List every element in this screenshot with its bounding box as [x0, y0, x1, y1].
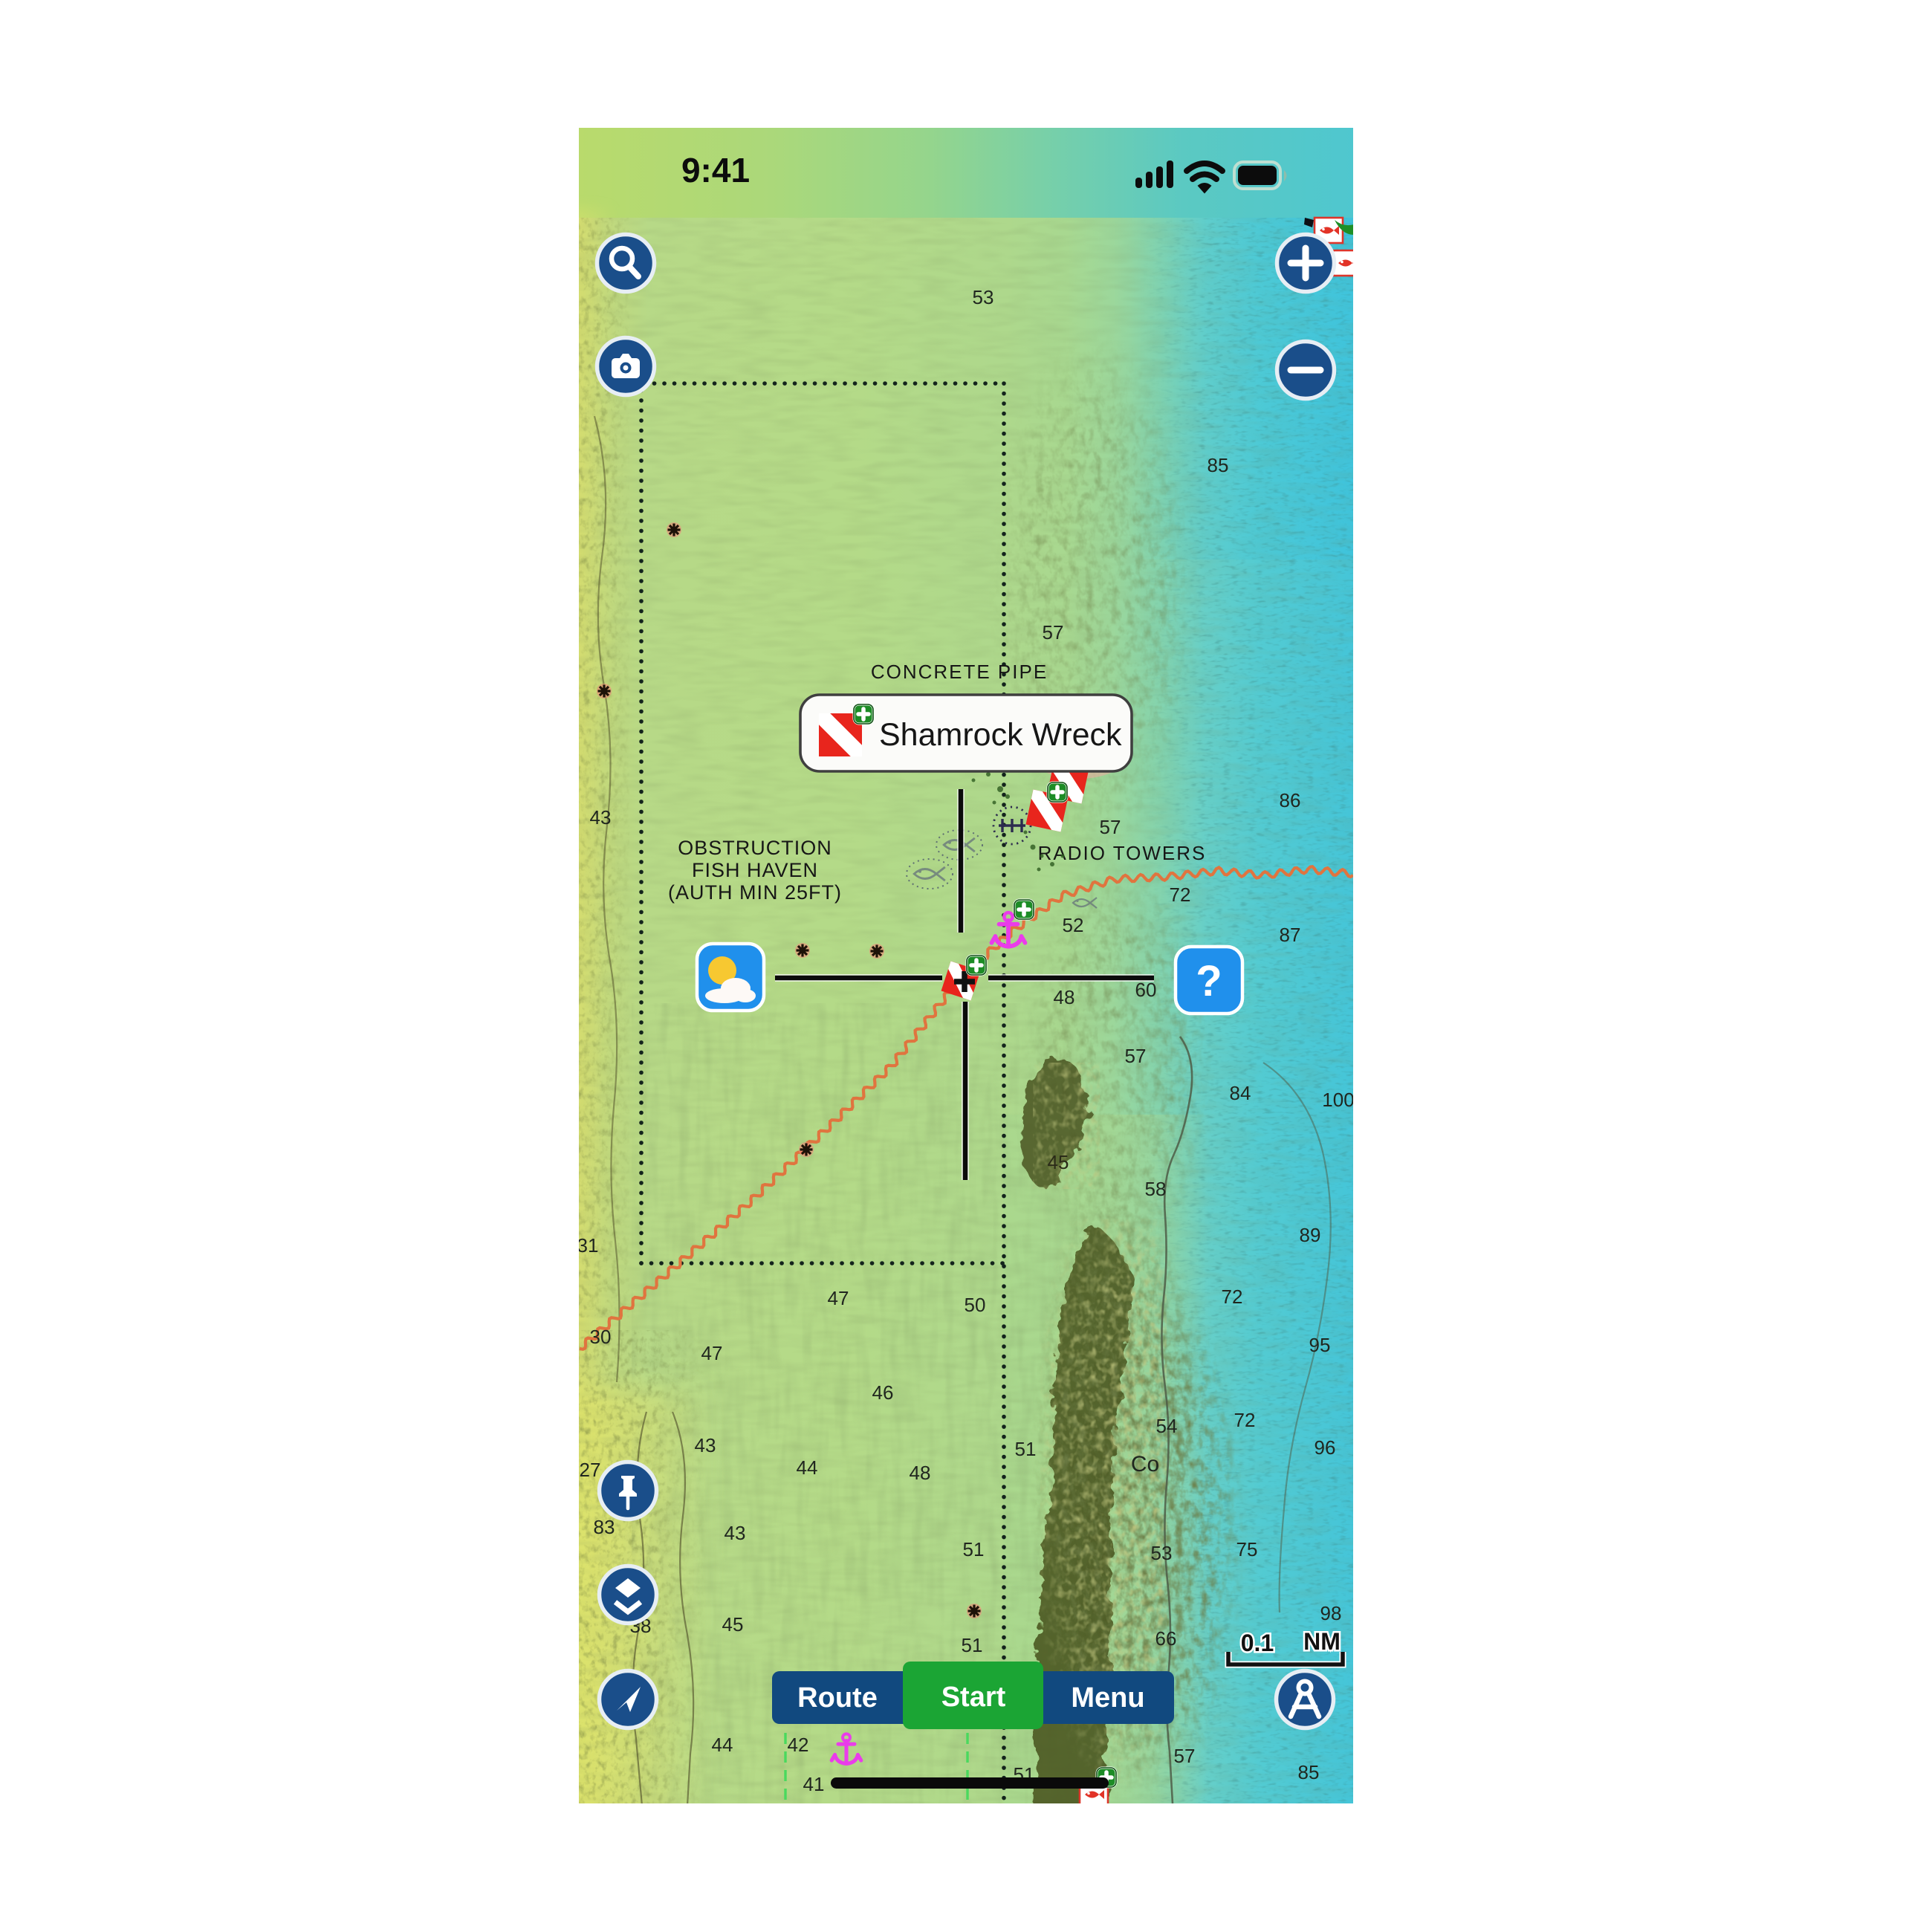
svg-text:30: 30: [590, 1326, 612, 1348]
svg-text:72: 72: [1222, 1286, 1243, 1308]
svg-text:43: 43: [695, 1434, 716, 1456]
svg-text:NM: NM: [1303, 1628, 1341, 1655]
svg-text:Co: Co: [1131, 1452, 1159, 1476]
svg-text:CONCRETE PIPE: CONCRETE PIPE: [871, 661, 1048, 683]
svg-text:50: 50: [965, 1294, 986, 1316]
svg-text:53: 53: [973, 286, 994, 308]
svg-text:Route: Route: [797, 1682, 878, 1714]
svg-text:(AUTH MIN 25FT): (AUTH MIN 25FT): [668, 881, 842, 904]
svg-text:44: 44: [712, 1734, 733, 1756]
svg-text:57: 57: [1125, 1045, 1147, 1067]
svg-text:43: 43: [724, 1522, 746, 1544]
svg-text:96: 96: [1315, 1436, 1336, 1459]
svg-text:100: 100: [1322, 1089, 1354, 1111]
svg-text:47: 47: [828, 1287, 849, 1309]
svg-text:87: 87: [1280, 924, 1301, 946]
svg-text:84: 84: [1230, 1082, 1251, 1104]
svg-text:58: 58: [1145, 1178, 1167, 1200]
svg-text:45: 45: [722, 1613, 744, 1636]
svg-text:51: 51: [963, 1538, 985, 1560]
svg-text:89: 89: [1300, 1224, 1321, 1246]
svg-text:44: 44: [797, 1456, 818, 1479]
svg-text:60: 60: [1135, 979, 1157, 1001]
svg-text:43: 43: [590, 806, 612, 829]
svg-text:31: 31: [577, 1234, 599, 1257]
svg-text:86: 86: [1280, 789, 1301, 811]
svg-text:85: 85: [1207, 454, 1229, 476]
svg-text:57: 57: [1100, 816, 1121, 838]
svg-text:83: 83: [594, 1516, 615, 1538]
svg-text:57: 57: [1174, 1745, 1196, 1767]
svg-text:RADIO TOWERS: RADIO TOWERS: [1038, 842, 1207, 864]
svg-text:52: 52: [1063, 914, 1084, 936]
svg-text:27: 27: [580, 1459, 601, 1481]
svg-text:95: 95: [1309, 1334, 1331, 1356]
svg-text:72: 72: [1234, 1409, 1256, 1431]
svg-text:47: 47: [701, 1342, 723, 1364]
svg-text:98: 98: [1320, 1602, 1342, 1624]
svg-text:FISH HAVEN: FISH HAVEN: [692, 859, 818, 881]
svg-text:48: 48: [1054, 986, 1075, 1008]
svg-text:Shamrock Wreck: Shamrock Wreck: [879, 717, 1122, 753]
svg-text:57: 57: [1043, 621, 1064, 644]
svg-text:51: 51: [1015, 1438, 1037, 1460]
svg-text:53: 53: [1151, 1542, 1173, 1564]
svg-text:?: ?: [1196, 957, 1222, 1005]
svg-text:0.1: 0.1: [1241, 1630, 1274, 1656]
svg-text:Start: Start: [941, 1682, 1006, 1713]
svg-text:66: 66: [1155, 1627, 1177, 1650]
svg-text:72: 72: [1170, 884, 1191, 906]
svg-text:OBSTRUCTION: OBSTRUCTION: [678, 837, 832, 859]
svg-text:46: 46: [872, 1381, 894, 1404]
svg-text:9:41: 9:41: [681, 151, 750, 189]
svg-text:85: 85: [1298, 1761, 1320, 1783]
svg-text:51: 51: [962, 1634, 983, 1656]
svg-text:48: 48: [910, 1462, 931, 1484]
svg-text:54: 54: [1156, 1415, 1178, 1437]
svg-text:75: 75: [1236, 1538, 1258, 1560]
svg-text:42: 42: [788, 1734, 809, 1756]
svg-text:41: 41: [803, 1773, 825, 1795]
svg-text:Menu: Menu: [1071, 1682, 1144, 1714]
svg-text:45: 45: [1048, 1151, 1069, 1173]
